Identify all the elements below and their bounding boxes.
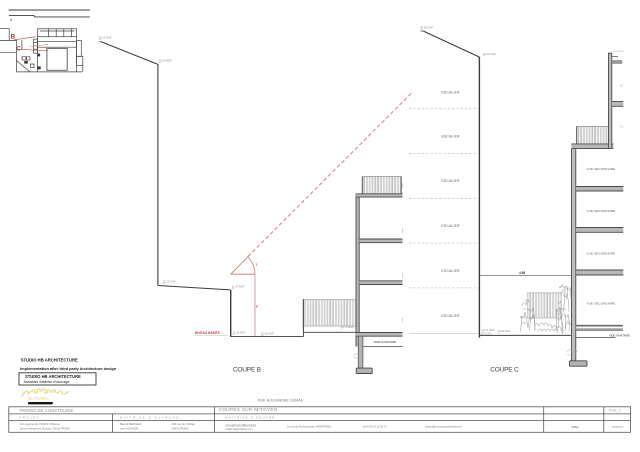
svg-text:NIVEAU HABITE: NIVEAU HABITE — [195, 331, 220, 335]
svg-text:VUE SECONDAIRE: VUE SECONDAIRE — [587, 302, 616, 306]
svg-text:COUPE B: COUPE B — [233, 367, 262, 374]
svg-text:ESCALIER: ESCALIER — [442, 134, 461, 138]
svg-text:36.85 NGF: 36.85 NGF — [420, 26, 434, 30]
svg-text:ESCALIER: ESCALIER — [442, 269, 461, 273]
svg-text:PERMIS DE CONSTRUIRE: PERMIS DE CONSTRUIRE — [20, 408, 74, 413]
svg-text:COUPE C: COUPE C — [490, 367, 519, 374]
svg-text:STUDIO HB ARCHITECTURE: STUDIO HB ARCHITECTURE — [21, 357, 78, 362]
svg-text:RUE ALEXANDRE DUMAS: RUE ALEXANDRE DUMAS — [258, 398, 304, 402]
svg-text:VUE SECONDAIRE: VUE SECONDAIRE — [587, 167, 616, 171]
svg-text:10.22 NGF: 10.22 NGF — [498, 329, 512, 333]
svg-text:COUPES SUR MITOYEN: COUPES SUR MITOYEN — [219, 407, 278, 412]
svg-text:atelier.gb@outlook.com: atelier.gb@outlook.com — [225, 427, 252, 431]
svg-text:33.20 NGF: 33.20 NGF — [483, 52, 497, 56]
svg-text:and HOOVER: and HOOVER — [120, 426, 138, 430]
svg-text:VIDE SANITAIRE: VIDE SANITAIRE — [609, 333, 630, 337]
svg-text:4.98: 4.98 — [519, 271, 525, 275]
svg-text:12.15 NGF: 12.15 NGF — [163, 280, 177, 284]
svg-text:STUDIO HB ARCHITECTURE: STUDIO HB ARCHITECTURE — [25, 374, 81, 379]
svg-text:ESCALIER: ESCALIER — [442, 224, 461, 228]
svg-text:31.55 NGF: 31.55 NGF — [613, 51, 624, 53]
svg-text:09/06/23: 09/06/23 — [612, 425, 623, 429]
svg-text:ESCALIER: ESCALIER — [442, 314, 461, 318]
svg-text:VUE SECONDAIRE: VUE SECONDAIRE — [587, 252, 616, 256]
svg-text:Implementation after third par: Implementation after third party Archite… — [20, 366, 117, 371]
svg-text:16 rue Alexandre Dumas 75020 P: 16 rue Alexandre Dumas 75020 PARIS — [20, 426, 70, 430]
svg-text:PROJET: PROJET — [20, 415, 40, 419]
svg-text:moopenarchitectures: moopenarchitectures — [225, 423, 256, 427]
svg-text:36.10 NGF: 36.10 NGF — [99, 36, 113, 40]
svg-text:Assistant Maitrise d'ouvrage: Assistant Maitrise d'ouvrage — [24, 380, 70, 384]
svg-text:MAITRISE D'OUVRAGE: MAITRISE D'OUVRAGE — [120, 415, 180, 419]
svg-text:PCE_2: PCE_2 — [609, 409, 621, 413]
svg-text:33.45 NGF: 33.45 NGF — [159, 59, 173, 63]
svg-text:VUE SECONDAIRE: VUE SECONDAIRE — [587, 209, 616, 213]
svg-text:10.36 NGF: 10.36 NGF — [233, 330, 247, 334]
svg-text:10.31 NGF: 10.31 NGF — [482, 328, 496, 332]
svg-text:tel M 06 14 12 96 71: tel M 06 14 12 96 71 — [363, 424, 387, 428]
svg-text:VISA: VISA — [572, 425, 579, 429]
svg-text:10.08 NGF: 10.08 NGF — [261, 331, 275, 335]
svg-text:ESCALIER: ESCALIER — [442, 91, 461, 95]
svg-text:ESCALIER: ESCALIER — [442, 179, 461, 183]
svg-text:MAITRISE D'OEUVRE: MAITRISE D'OEUVRE — [225, 415, 275, 419]
svg-text:VIDE SANITAIRE: VIDE SANITAIRE — [374, 340, 397, 344]
svg-text:sandra@moopenarchitectures.fr: sandra@moopenarchitectures.fr — [425, 424, 462, 428]
svg-text:11.75 NGF: 11.75 NGF — [232, 284, 245, 288]
svg-text:75013 PARIS: 75013 PARIS — [171, 426, 188, 430]
svg-text:10 rue de Rochechouart 75009 P: 10 rue de Rochechouart 75009 PARIS — [287, 424, 331, 428]
svg-text:3: 3 — [256, 263, 258, 267]
svg-text:8: 8 — [256, 305, 258, 309]
svg-text:DEUTSCHBAU: DEUTSCHBAU — [28, 397, 49, 401]
